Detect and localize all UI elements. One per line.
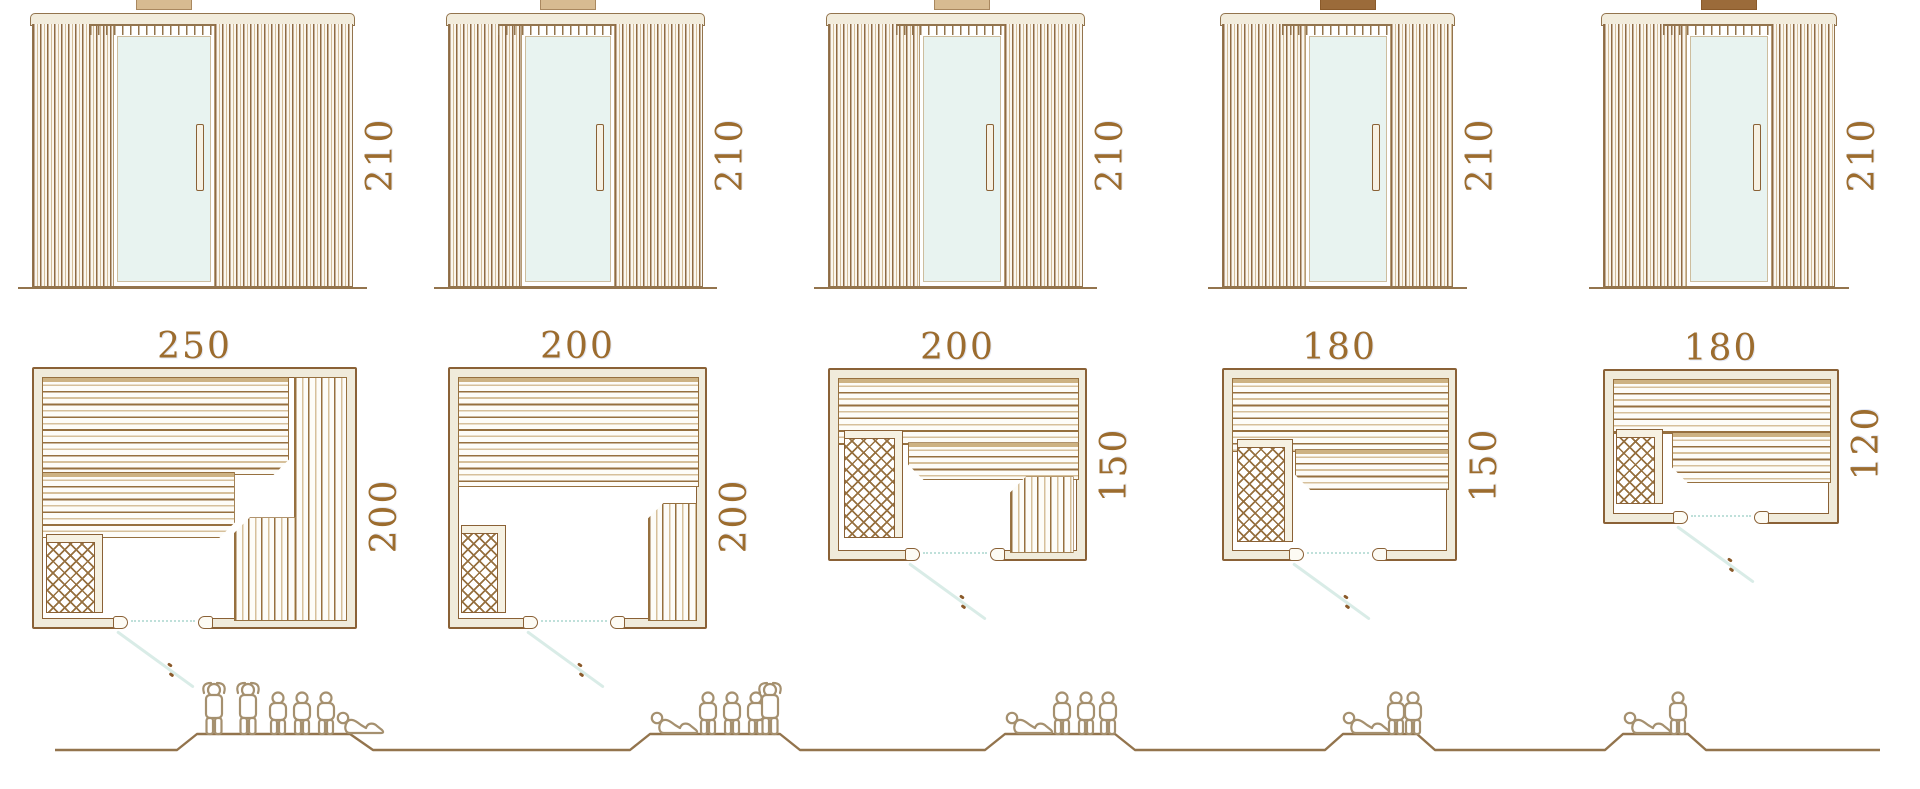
ground-line bbox=[814, 287, 1097, 289]
wall-slats-right bbox=[615, 24, 702, 286]
roof-vent-icon bbox=[934, 0, 990, 10]
wall-slats-left bbox=[829, 24, 919, 286]
door-track bbox=[90, 24, 215, 35]
width-dimension: 200 bbox=[818, 328, 1097, 368]
capacity-strip bbox=[0, 672, 1920, 789]
side-bench bbox=[1010, 476, 1074, 552]
door-threshold-dots bbox=[541, 620, 607, 622]
sauna-elevation-1: 210 bbox=[32, 0, 353, 289]
height-dimension: 210 bbox=[711, 99, 751, 211]
ground-line bbox=[1589, 287, 1849, 289]
door-jamb-left bbox=[113, 616, 128, 629]
door-handle-icon bbox=[167, 662, 173, 667]
sauna-floorplan-1: 250 200 bbox=[32, 367, 357, 629]
glass-door bbox=[919, 24, 1005, 286]
capacity-group-5 bbox=[1625, 693, 1686, 735]
capacity-group-3 bbox=[1007, 693, 1116, 735]
side-bench bbox=[648, 503, 697, 621]
sauna-size-diagram: 210 210 210 bbox=[0, 0, 1920, 789]
front-wall bbox=[1222, 24, 1453, 287]
upper-bench bbox=[458, 377, 699, 487]
heater-icon bbox=[1616, 429, 1663, 504]
plan-interior bbox=[42, 377, 347, 619]
capacity-group-4 bbox=[1344, 693, 1421, 735]
door-jamb-left bbox=[1673, 511, 1688, 524]
roof-vent-icon bbox=[540, 0, 596, 10]
glass-door bbox=[1305, 24, 1391, 286]
heater-grate bbox=[461, 533, 498, 613]
depth-dimension: 200 bbox=[715, 460, 755, 572]
sauna-elevation-4: 210 bbox=[1222, 0, 1453, 289]
width-dimension: 180 bbox=[1593, 329, 1849, 369]
door-handle-icon bbox=[1372, 124, 1380, 191]
door-track bbox=[896, 24, 1005, 35]
door-handle-icon bbox=[1343, 594, 1349, 599]
door-handle-icon bbox=[596, 124, 604, 191]
ground-line bbox=[1208, 287, 1467, 289]
door-opening bbox=[117, 615, 208, 629]
plan-interior bbox=[1613, 379, 1829, 514]
ground-line bbox=[18, 287, 367, 289]
door-swing-line bbox=[1292, 562, 1371, 620]
sauna-floorplan-2: 200 200 bbox=[448, 367, 707, 629]
width-dimension: 180 bbox=[1212, 328, 1467, 368]
width-dimension: 200 bbox=[438, 327, 717, 367]
roof-vent-icon bbox=[136, 0, 192, 10]
wall-slats-right bbox=[215, 24, 352, 286]
wall-slats-left bbox=[449, 24, 521, 286]
lower-bench bbox=[42, 472, 235, 539]
door-handle-icon bbox=[1753, 124, 1761, 191]
plan-interior bbox=[838, 378, 1077, 551]
door-handle-icon bbox=[1728, 567, 1734, 572]
door-swing-line bbox=[908, 562, 987, 620]
sauna-floorplan-5: 180 120 bbox=[1603, 369, 1839, 524]
side-bench bbox=[294, 377, 348, 621]
heater-grate bbox=[844, 438, 895, 538]
glass-door bbox=[113, 24, 215, 286]
sauna-elevation-5: 210 bbox=[1603, 0, 1835, 289]
sauna-floorplan-4: 180 150 bbox=[1222, 368, 1457, 561]
sauna-elevation-2: 210 bbox=[448, 0, 703, 289]
height-dimension: 210 bbox=[1091, 99, 1131, 211]
door-threshold-dots bbox=[1307, 552, 1369, 554]
heater-icon bbox=[1237, 439, 1292, 542]
front-wall bbox=[1603, 24, 1835, 287]
door-handle-icon bbox=[1727, 557, 1733, 562]
heater-grate bbox=[1616, 437, 1655, 504]
width-dimension: 250 bbox=[22, 327, 367, 367]
plan-interior bbox=[458, 377, 697, 619]
wall-slats-left bbox=[33, 24, 113, 286]
capacity-group-2 bbox=[652, 683, 781, 734]
glass-door bbox=[521, 24, 615, 286]
front-wall bbox=[32, 24, 353, 287]
capacity-group-1 bbox=[203, 683, 383, 734]
height-dimension: 210 bbox=[1843, 99, 1883, 211]
door-jamb-right bbox=[1754, 511, 1769, 524]
roof-vent-icon bbox=[1701, 0, 1757, 10]
door-jamb-right bbox=[1372, 548, 1387, 561]
height-dimension: 210 bbox=[1461, 99, 1501, 211]
side-bench bbox=[234, 517, 297, 621]
door-track bbox=[498, 24, 615, 35]
door-jamb-left bbox=[1289, 548, 1304, 561]
door-opening bbox=[1677, 510, 1765, 524]
height-dimension: 210 bbox=[361, 99, 401, 211]
door-swing-line bbox=[1676, 525, 1755, 583]
sauna-floorplan-3: 200 150 bbox=[828, 368, 1087, 561]
lower-bench bbox=[908, 442, 1079, 480]
wall-slats-left bbox=[1223, 24, 1305, 286]
heater-grate bbox=[46, 542, 95, 613]
bench-platform-line bbox=[55, 734, 1880, 750]
door-handle-icon bbox=[959, 594, 965, 599]
front-wall bbox=[828, 24, 1083, 287]
upper-bench bbox=[42, 377, 289, 475]
door-track bbox=[1663, 24, 1772, 35]
door-jamb-right bbox=[610, 616, 625, 629]
door-jamb-right bbox=[198, 616, 213, 629]
wall-slats-right bbox=[1391, 24, 1452, 286]
ground-line bbox=[434, 287, 717, 289]
plan-interior bbox=[1232, 378, 1447, 551]
door-jamb-left bbox=[523, 616, 538, 629]
front-wall bbox=[448, 24, 703, 287]
door-threshold-dots bbox=[923, 552, 987, 554]
lower-bench bbox=[1672, 432, 1831, 483]
heater-grate bbox=[1237, 447, 1284, 542]
door-jamb-left bbox=[905, 548, 920, 561]
door-handle-icon bbox=[986, 124, 994, 191]
door-handle-icon bbox=[196, 124, 204, 191]
door-handle-icon bbox=[1345, 604, 1351, 609]
door-track bbox=[1282, 24, 1391, 35]
depth-dimension: 150 bbox=[1095, 409, 1135, 521]
wall-slats-right bbox=[1772, 24, 1834, 286]
door-jamb-right bbox=[990, 548, 1005, 561]
roof-vent-icon bbox=[1320, 0, 1376, 10]
wall-slats-right bbox=[1005, 24, 1082, 286]
door-handle-icon bbox=[576, 662, 582, 667]
door-threshold-dots bbox=[131, 620, 194, 622]
heater-icon bbox=[461, 525, 506, 613]
glass-door bbox=[1686, 24, 1772, 286]
depth-dimension: 200 bbox=[365, 460, 405, 572]
heater-icon bbox=[46, 534, 103, 613]
upper-bench bbox=[1613, 379, 1831, 434]
lower-bench bbox=[1295, 449, 1449, 490]
door-handle-icon bbox=[960, 604, 966, 609]
door-opening bbox=[909, 547, 1001, 561]
door-opening bbox=[1293, 547, 1383, 561]
sauna-elevation-3: 210 bbox=[828, 0, 1083, 289]
door-opening bbox=[527, 615, 621, 629]
depth-dimension: 120 bbox=[1847, 387, 1887, 499]
depth-dimension: 150 bbox=[1465, 409, 1505, 521]
heater-icon bbox=[844, 430, 903, 538]
wall-slats-left bbox=[1604, 24, 1686, 286]
door-threshold-dots bbox=[1691, 515, 1751, 517]
